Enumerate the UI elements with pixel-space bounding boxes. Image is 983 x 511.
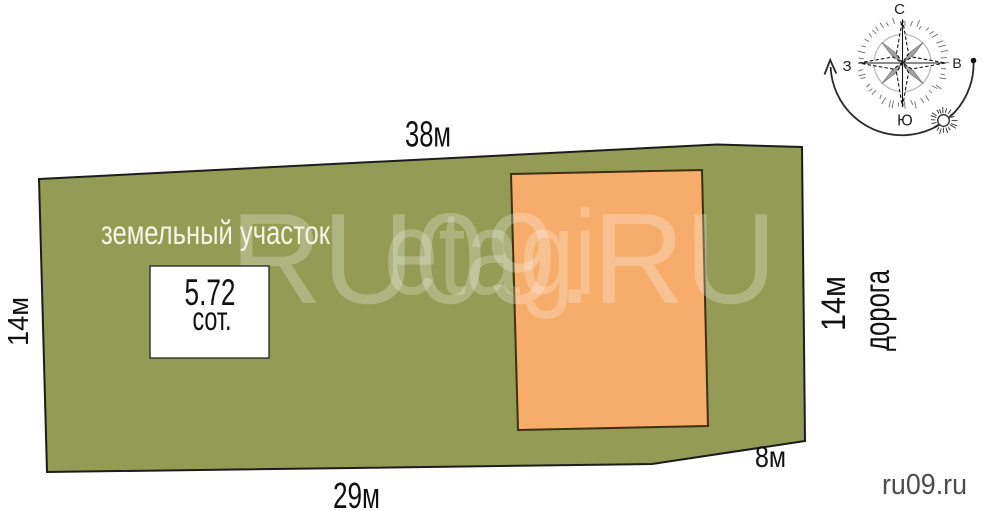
svg-text:etagi: etagi: [384, 186, 596, 320]
svg-text:ru09.ru: ru09.ru: [882, 469, 967, 501]
svg-text:С: С: [894, 1, 905, 18]
svg-text:14м: 14м: [815, 276, 853, 331]
svg-text:З: З: [842, 58, 851, 75]
svg-text:дорога: дорога: [858, 270, 897, 351]
svg-text:14м: 14м: [3, 297, 35, 346]
svg-text:38м: 38м: [405, 114, 451, 155]
svg-text:8м: 8м: [755, 441, 786, 474]
svg-text:29м: 29м: [333, 475, 380, 511]
svg-text:В: В: [952, 55, 961, 71]
svg-text:сот.: сот.: [193, 300, 232, 337]
svg-text:Ю: Ю: [897, 113, 913, 130]
svg-text:земельный участок: земельный участок: [101, 214, 330, 251]
